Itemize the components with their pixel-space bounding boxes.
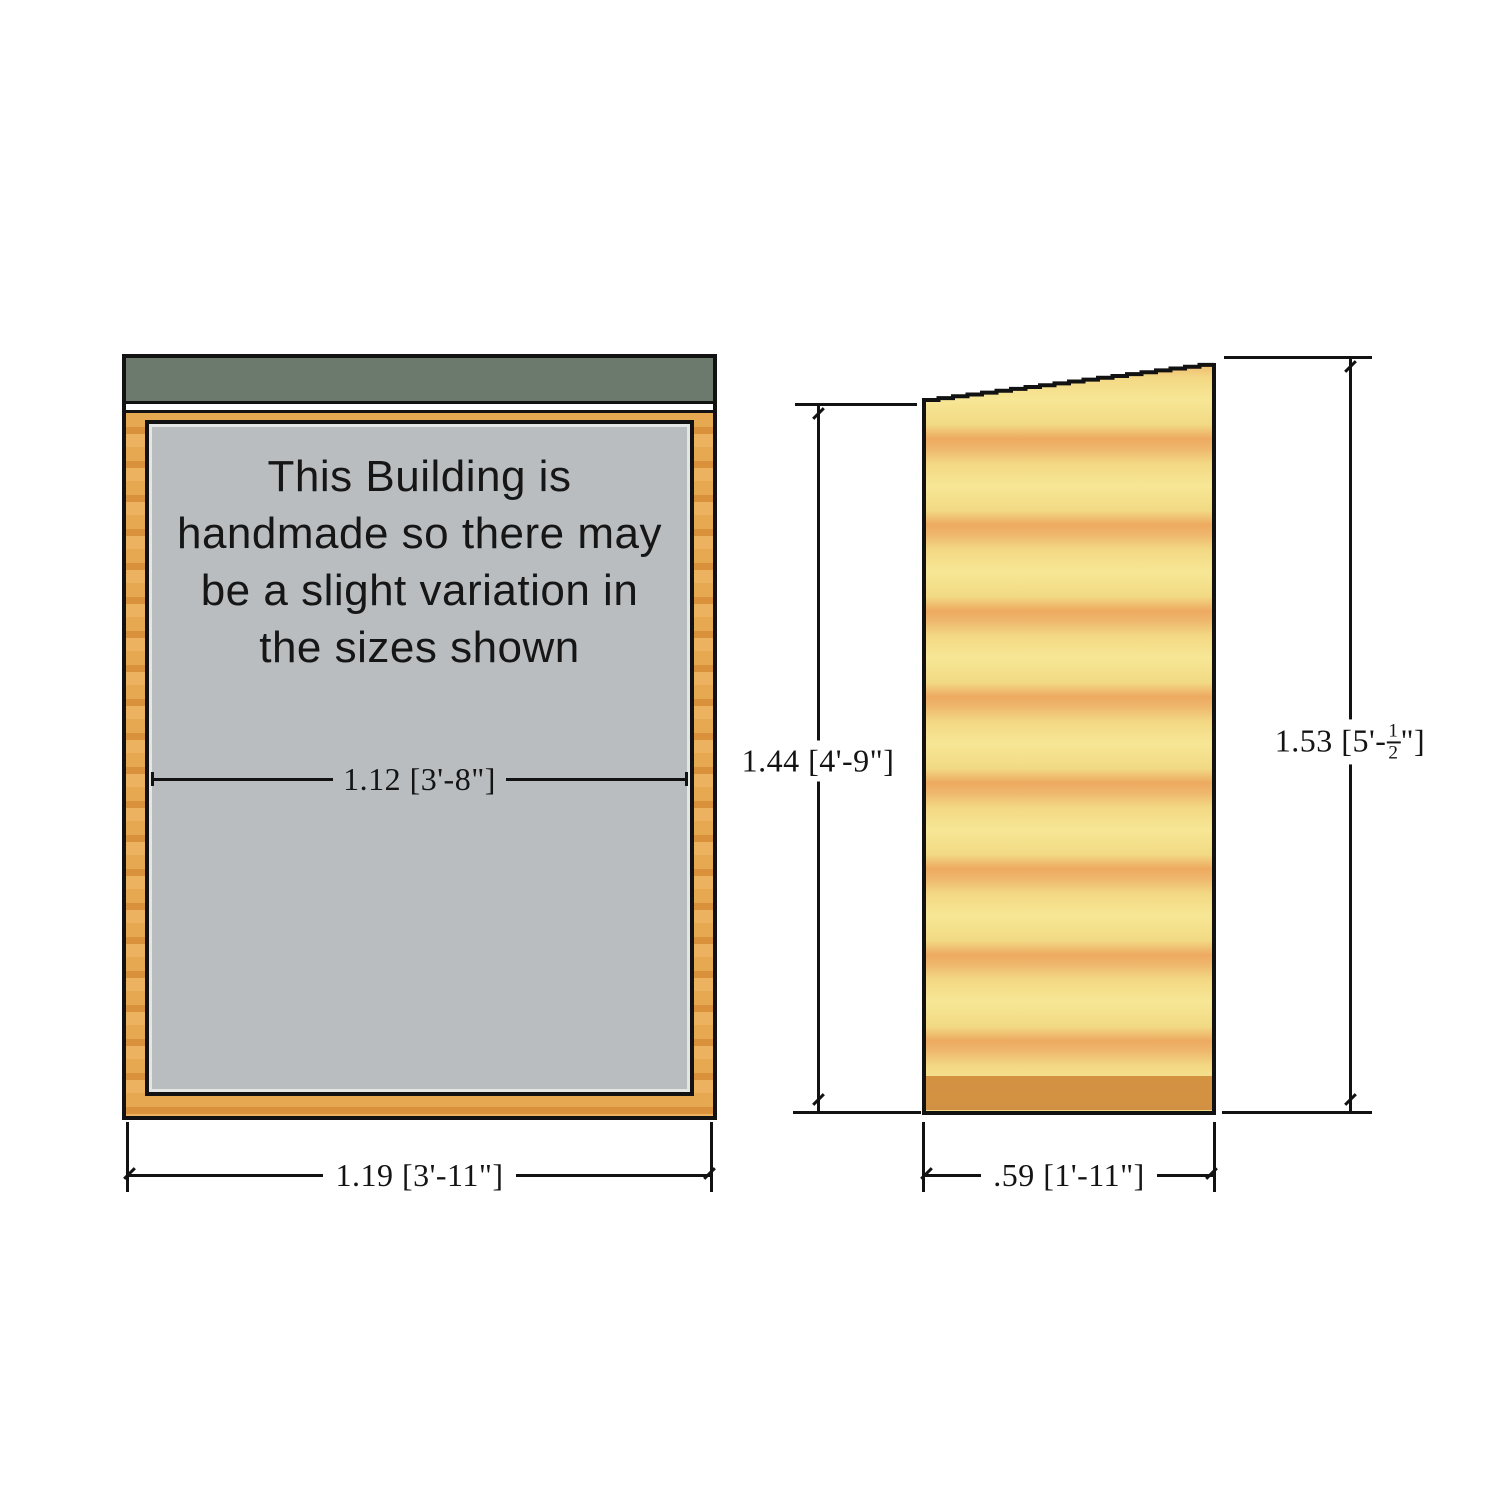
extension-line [793,1111,921,1114]
side-height-front-label: 1.44 [4'-9"] [734,741,903,782]
dimension-end-tick [685,772,688,786]
dimension-line-row: 1.19 [3'-11"] [127,1158,712,1192]
fraction-denominator: 2 [1386,743,1400,763]
half-inch-fraction: 12 [1386,721,1400,762]
shed-dimension-diagram: This Building is handmade so there may b… [0,0,1500,1500]
dimension-line [127,1174,323,1177]
side-depth-dimension: .59 [1'-11"] [922,1122,1216,1198]
dimension-line [924,1174,981,1177]
side-cladding-panel [924,363,1214,1113]
height-back-suffix: "] [1400,722,1425,758]
dimension-line [154,778,333,781]
extension-line [795,403,917,406]
dimension-line-row: .59 [1'-11"] [924,1158,1214,1192]
interior-width-dimension: 1.12 [3'-8"] [151,759,688,799]
notice-line-3: be a slight variation in [149,562,690,619]
side-elevation [921,360,1217,1116]
notice-line-4: the sizes shown [149,619,690,676]
notice-line-1: This Building is [149,448,690,505]
front-elevation: This Building is handmade so there may b… [122,354,717,1120]
side-floor-band [926,1076,1212,1110]
front-info-panel: This Building is handmade so there may b… [145,420,694,1096]
overall-width-label: 1.19 [3'-11"] [323,1157,515,1194]
height-back-prefix: 1.53 [5'- [1275,722,1387,758]
dimension-line [516,1174,712,1177]
handmade-notice: This Building is handmade so there may b… [149,448,690,676]
notice-line-2: handmade so there may [149,505,690,562]
overall-width-dimension: 1.19 [3'-11"] [122,1122,717,1198]
side-depth-label: .59 [1'-11"] [981,1157,1157,1194]
fraction-numerator: 1 [1386,721,1400,743]
front-wood-frame: This Building is handmade so there may b… [126,410,713,1116]
interior-width-label: 1.12 [3'-8"] [333,761,506,798]
side-height-back-label: 1.53 [5'-12"] [1267,719,1433,764]
dimension-line [506,778,685,781]
roof-fascia-strip [126,358,713,404]
